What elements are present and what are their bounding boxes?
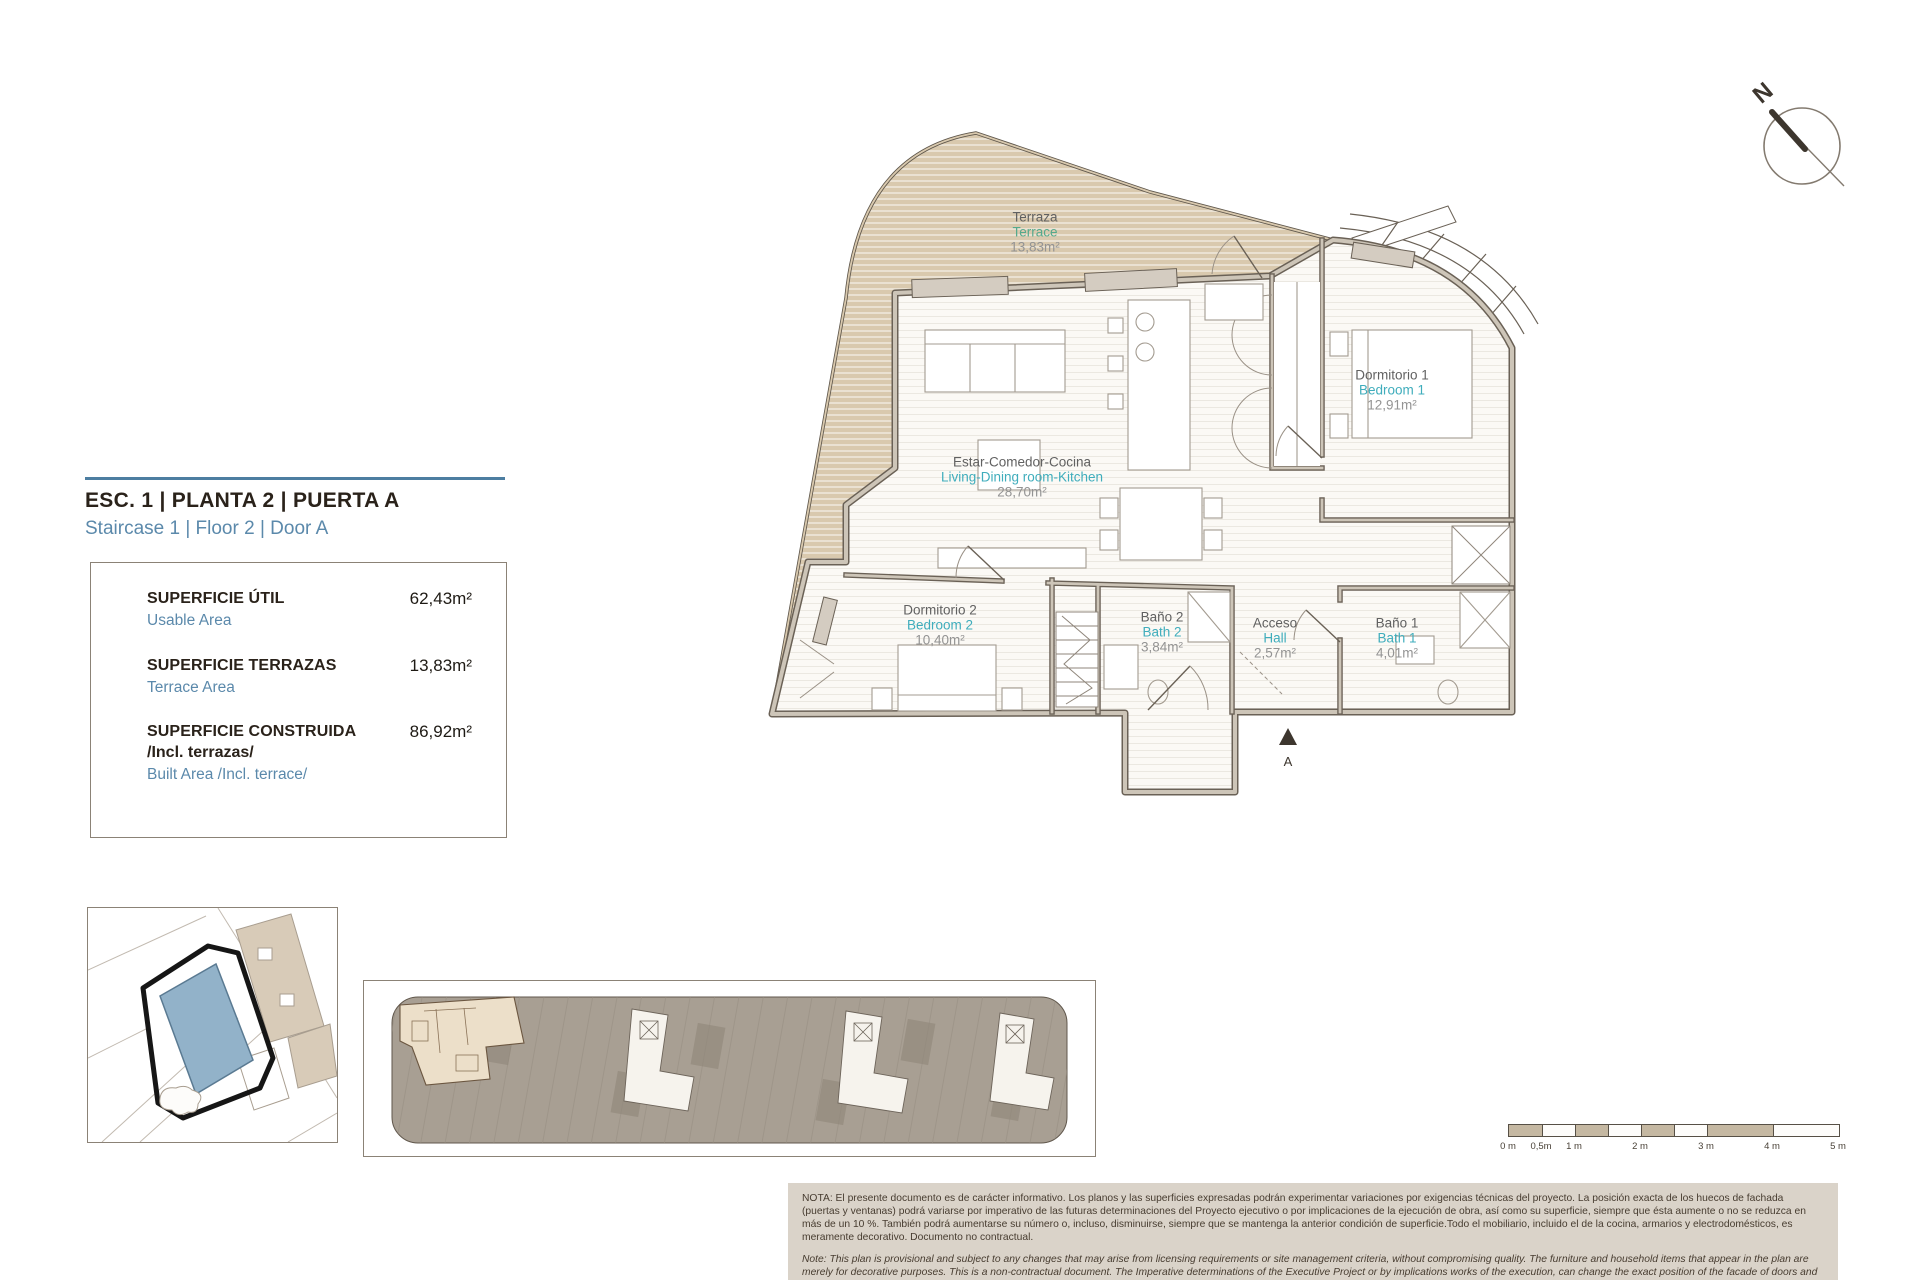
area-label-en: Terrace Area — [147, 679, 472, 697]
scale-bar: 0 m 0,5m 1 m 2 m 3 m 4 m 5 m — [1500, 1116, 1845, 1164]
floor-plan-drawing: A — [740, 100, 1550, 800]
room-area: 12,91m² — [1355, 398, 1429, 413]
room-name-en: Bath 2 — [1141, 625, 1184, 640]
building-key-plan-drawing — [364, 981, 1095, 1156]
room-name-en: Terrace — [1010, 225, 1060, 240]
page-title: ESC. 1 | PLANTA 2 | PUERTA A — [85, 489, 400, 513]
area-row-built: SUPERFICIE CONSTRUIDA /Incl. terrazas/ B… — [147, 723, 472, 784]
scale-label: 5 m — [1830, 1141, 1846, 1152]
room-area: 28,70m² — [941, 485, 1103, 500]
room-name-en: Bath 1 — [1376, 631, 1419, 646]
note-spanish: NOTA: El presente documento es de caráct… — [802, 1192, 1824, 1244]
scale-label: 0,5m — [1530, 1141, 1551, 1152]
north-arrow-icon: N — [1742, 58, 1852, 188]
area-row-usable: SUPERFICIE ÚTIL Usable Area 62,43m² — [147, 590, 472, 630]
scale-label: 1 m — [1566, 1141, 1582, 1152]
area-value: 86,92m² — [410, 722, 472, 742]
room-label-acceso: Acceso Hall 2,57m² — [1253, 616, 1297, 661]
room-label-estar: Estar-Comedor-Cocina Living-Dining room-… — [941, 455, 1103, 500]
room-name-es: Baño 1 — [1376, 616, 1419, 631]
building-key-plan — [363, 980, 1096, 1157]
room-area: 13,83m² — [1010, 240, 1060, 255]
area-label-en: Usable Area — [147, 612, 472, 630]
north-label: N — [1748, 77, 1779, 109]
area-value: 13,83m² — [410, 656, 472, 676]
room-label-dormitorio-2: Dormitorio 2 Bedroom 2 10,40m² — [903, 603, 977, 648]
room-name-en: Hall — [1253, 631, 1297, 646]
note-english: Note: This plan is provisional and subje… — [802, 1253, 1824, 1280]
room-name-en: Bedroom 2 — [903, 618, 977, 633]
entrance-arrow-icon: A — [1279, 728, 1297, 769]
room-area: 2,57m² — [1253, 646, 1297, 661]
site-buildings — [236, 914, 337, 1110]
site-key-plan-drawing — [88, 908, 337, 1142]
notes-band: NOTA: El presente documento es de caráct… — [788, 1183, 1838, 1280]
scale-label: 3 m — [1698, 1141, 1714, 1152]
room-name-es: Terraza — [1010, 210, 1060, 225]
entrance-label: A — [1284, 754, 1293, 769]
scale-label: 4 m — [1764, 1141, 1780, 1152]
room-name-es: Baño 2 — [1141, 610, 1184, 625]
room-label-dormitorio-1: Dormitorio 1 Bedroom 1 12,91m² — [1355, 368, 1429, 413]
room-name-en: Bedroom 1 — [1355, 383, 1429, 398]
room-label-bano-1: Baño 1 Bath 1 4,01m² — [1376, 616, 1419, 661]
room-area: 10,40m² — [903, 633, 977, 648]
scale-bar-strip — [1508, 1124, 1840, 1137]
title-rule — [85, 477, 505, 480]
scale-label: 0 m — [1500, 1141, 1516, 1152]
room-label-terraza: Terraza Terrace 13,83m² — [1010, 210, 1060, 255]
room-name-es: Estar-Comedor-Cocina — [941, 455, 1103, 470]
site-key-plan — [87, 907, 338, 1143]
room-name-en: Living-Dining room-Kitchen — [941, 470, 1103, 485]
room-name-es: Dormitorio 1 — [1355, 368, 1429, 383]
room-area: 4,01m² — [1376, 646, 1419, 661]
room-name-es: Acceso — [1253, 616, 1297, 631]
scale-label: 2 m — [1632, 1141, 1648, 1152]
plan-sheet: N ESC. 1 | PLANTA 2 | PUERTA A Staircase… — [0, 0, 1920, 1280]
area-row-terrace: SUPERFICIE TERRAZAS Terrace Area 13,83m² — [147, 657, 472, 697]
area-label-en: Built Area /Incl. terrace/ — [147, 766, 472, 784]
area-label-es-2: /Incl. terrazas/ — [147, 744, 472, 762]
room-name-es: Dormitorio 2 — [903, 603, 977, 618]
page-subtitle: Staircase 1 | Floor 2 | Door A — [85, 518, 328, 540]
room-label-bano-2: Baño 2 Bath 2 3,84m² — [1141, 610, 1184, 655]
room-area: 3,84m² — [1141, 640, 1184, 655]
area-table: SUPERFICIE ÚTIL Usable Area 62,43m² SUPE… — [90, 562, 507, 838]
site-highlighted-building — [160, 964, 253, 1094]
area-value: 62,43m² — [410, 589, 472, 609]
